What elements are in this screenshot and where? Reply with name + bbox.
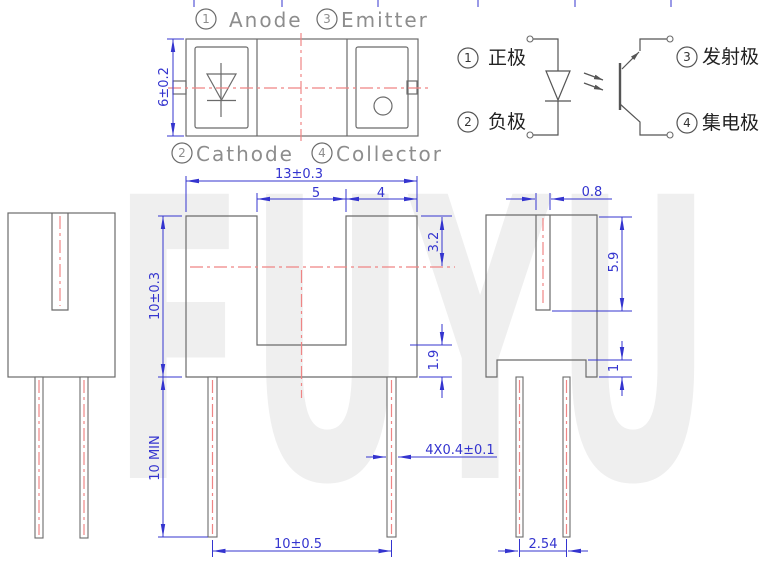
dim-label-2-54: 2.54: [529, 537, 558, 552]
dim-label-13: 13±0.3: [275, 167, 323, 182]
dim-label-10-min: 10 MIN: [148, 435, 163, 480]
dim-label-1: 1: [607, 364, 622, 372]
dim-label-10-05: 10±0.5: [274, 537, 322, 552]
pin2-number: 2: [178, 146, 186, 160]
dim-label-1-9: 1.9: [427, 350, 442, 371]
watermark: FUYU: [112, 116, 715, 565]
pin4-number: 4: [318, 146, 326, 160]
light-arrows-icon: [584, 73, 603, 90]
watermark-text: FUYU: [112, 116, 715, 565]
dim-label-6: 6±0.2: [157, 67, 172, 107]
pin4-label: Collector: [336, 142, 443, 166]
dim-label-4: 4: [377, 186, 385, 201]
schematic-pin3-label: 发射极: [702, 46, 759, 68]
pin1-number: 1: [202, 12, 210, 26]
pin3-label: Emitter: [341, 8, 429, 32]
pin3-number: 3: [323, 12, 331, 26]
schematic-pin2-label: 负极: [488, 111, 526, 133]
top-edge-ticks: [194, 0, 671, 7]
dim-label-lead-width: 4X0.4±0.1: [425, 443, 494, 458]
schematic-pin3-number: 3: [683, 50, 691, 64]
pin1-label: Anode: [229, 8, 303, 32]
pin2-label: Cathode: [196, 142, 294, 166]
dim-label-5: 5: [312, 186, 320, 201]
dim-label-0-8: 0.8: [582, 185, 603, 200]
dim-label-3-2: 3.2: [427, 232, 442, 253]
detector-lens-icon: [374, 97, 392, 115]
schematic-pin1-label: 正极: [488, 47, 526, 69]
left-side-view: [8, 213, 115, 538]
schematic-pin1-number: 1: [464, 51, 472, 65]
dim-label-10-03: 10±0.3: [148, 272, 163, 320]
schematic-pin2-number: 2: [464, 115, 472, 129]
datasheet-drawing: FUYU 6±0.2: [0, 0, 766, 565]
schematic-pin4-label: 集电极: [702, 112, 759, 134]
drawing-canvas: FUYU 6±0.2: [0, 0, 766, 565]
schematic-pin4-number: 4: [683, 116, 691, 130]
diode-symbol-icon: [207, 63, 236, 117]
dim-label-5-9: 5.9: [607, 252, 622, 273]
